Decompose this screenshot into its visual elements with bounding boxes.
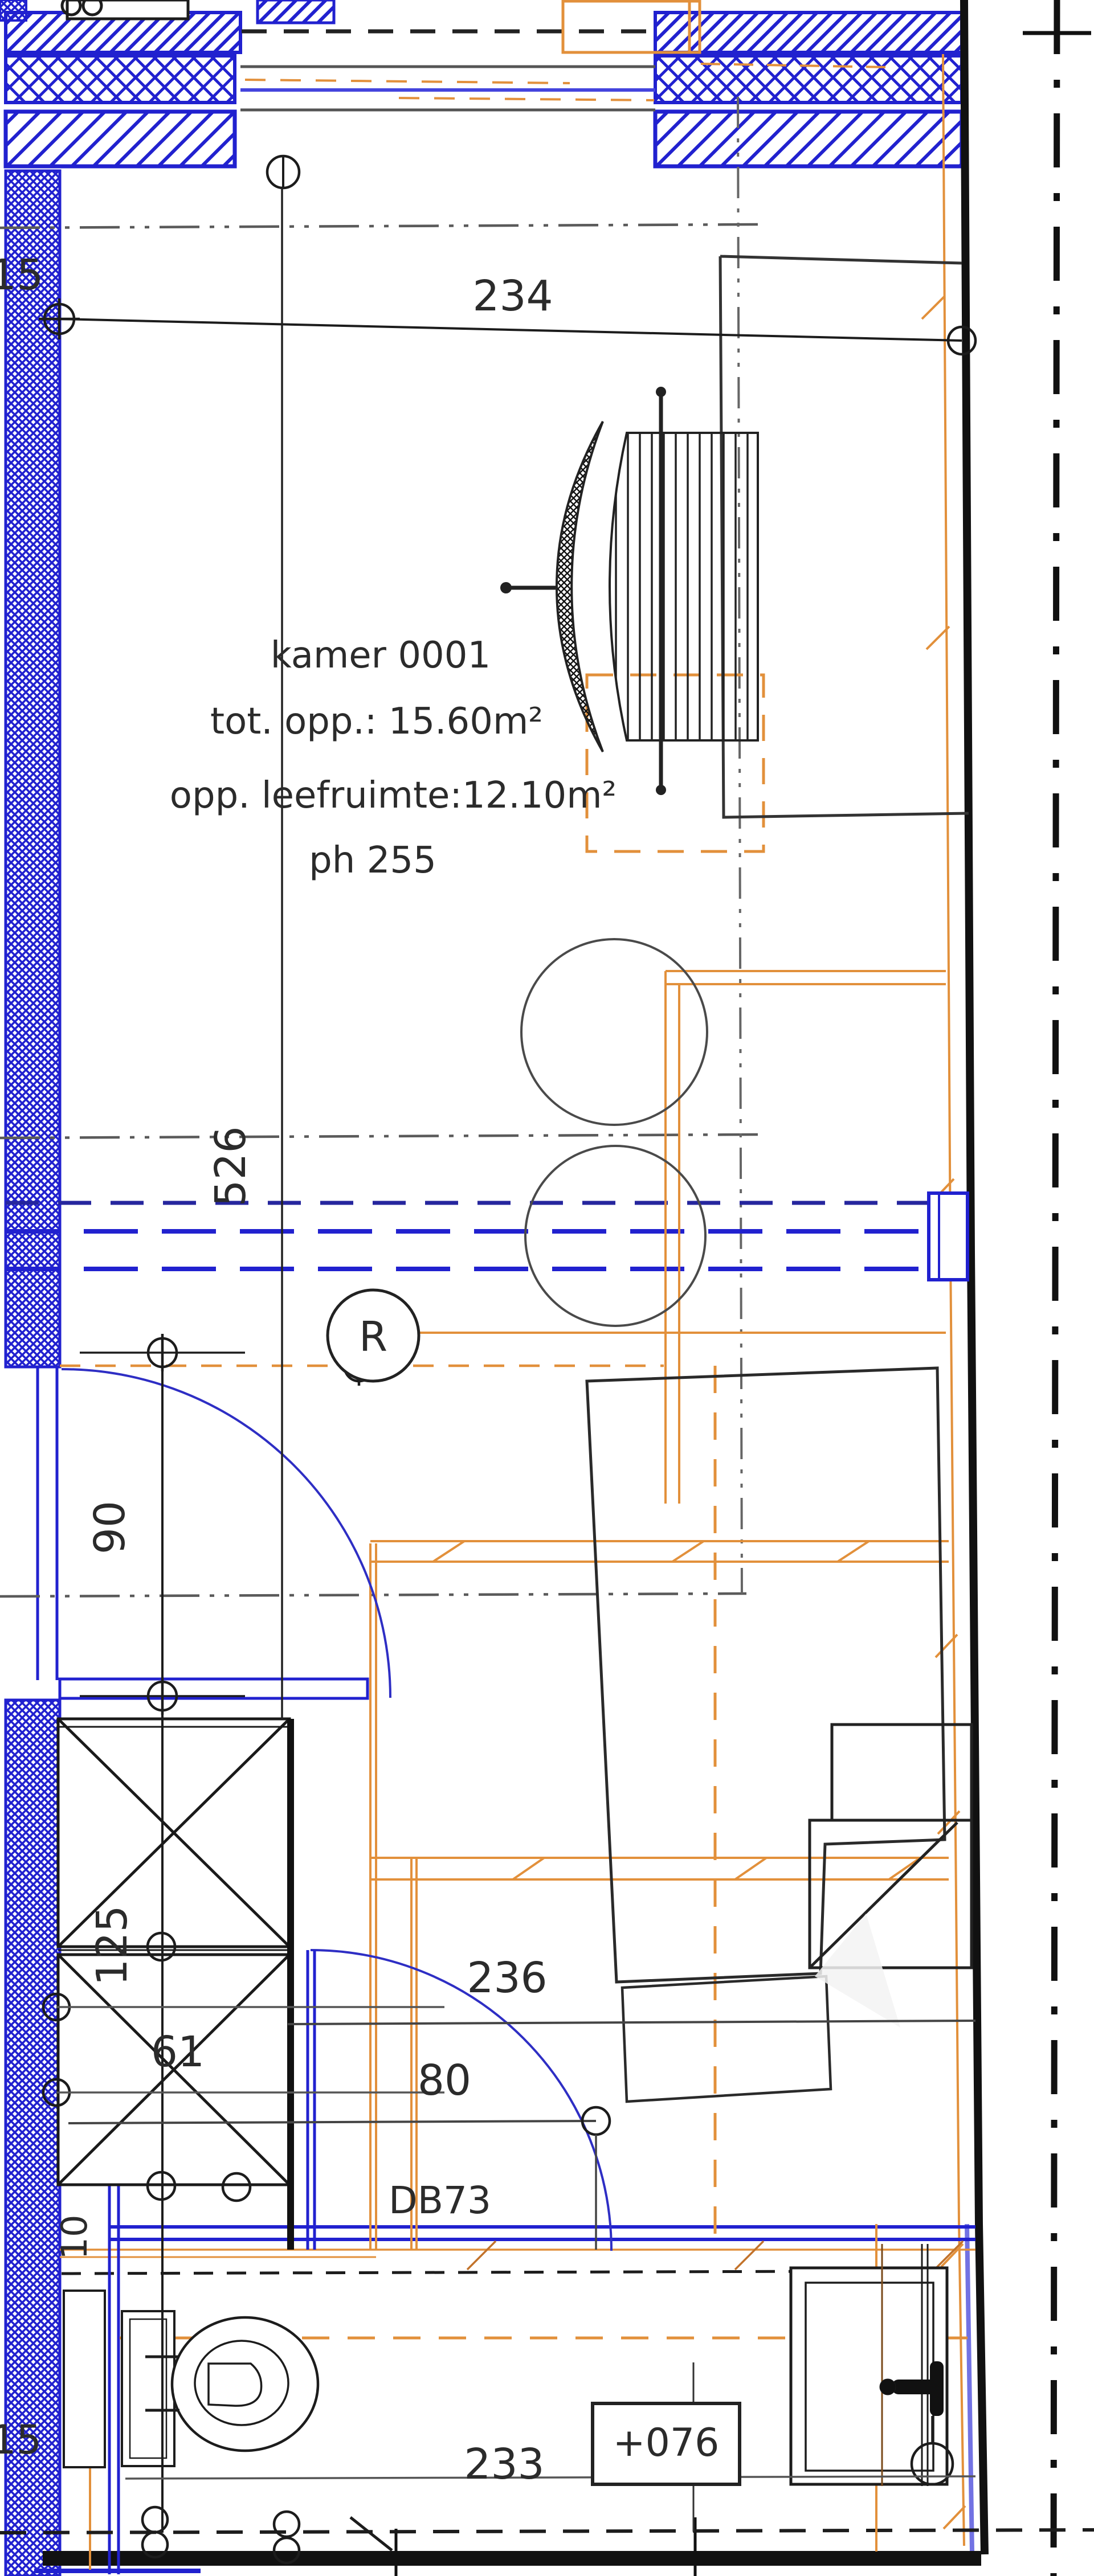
furniture-lower-right — [810, 1725, 971, 2028]
top-wall-left-pier — [6, 13, 240, 166]
radiator-letter: R — [359, 1313, 387, 1361]
dim-bath-inner-width: 233 — [464, 2440, 544, 2489]
site-boundary-axis — [1023, 0, 1091, 2576]
room-total-area: tot. opp.: 15.60m² — [210, 701, 543, 743]
floor-plan-page: 15 234 kamer 0001 tot. opp.: 15.60m² opp… — [0, 0, 1094, 2576]
dim-bottom-wall-thickness: 15 — [0, 2417, 42, 2463]
floor-level-value: +076 — [613, 2421, 720, 2466]
dim-wall-gap: 10 — [54, 2215, 95, 2260]
dimension-lines — [39, 156, 975, 2563]
shower-unit — [791, 2244, 953, 2486]
mid-plan-blue-band — [6, 1193, 969, 1280]
left-wall — [6, 171, 60, 2576]
room-name: kamer 0001 — [271, 634, 491, 677]
dim-shaft2-depth: 61 — [151, 2028, 205, 2077]
room-ph: ph 255 — [309, 839, 436, 882]
top-wall-right-pier — [655, 13, 962, 166]
dim-top-width: 234 — [472, 272, 553, 321]
dim-room-length: 526 — [206, 1126, 255, 1206]
dim-top-wall-thickness: 15 — [0, 251, 43, 300]
floor-plan-drawing: 15 234 kamer 0001 tot. opp.: 15.60m² opp… — [0, 0, 1094, 2576]
door2-code: DB73 — [389, 2178, 491, 2222]
bottom-wall — [34, 2517, 981, 2576]
room-living-area: opp. leefruimte:12.10m² — [170, 775, 617, 817]
radiator-symbol: R — [328, 1290, 419, 1381]
dim-shaft-depth: 125 — [88, 1905, 137, 1985]
floor-level-tag: +076 — [593, 2403, 740, 2484]
dim-door2-width: 80 — [418, 2056, 471, 2105]
bed — [587, 1368, 945, 2102]
dim-bath-width: 236 — [467, 1953, 547, 2002]
dim-door-width: 90 — [85, 1501, 134, 1554]
toilet — [64, 2291, 318, 2467]
